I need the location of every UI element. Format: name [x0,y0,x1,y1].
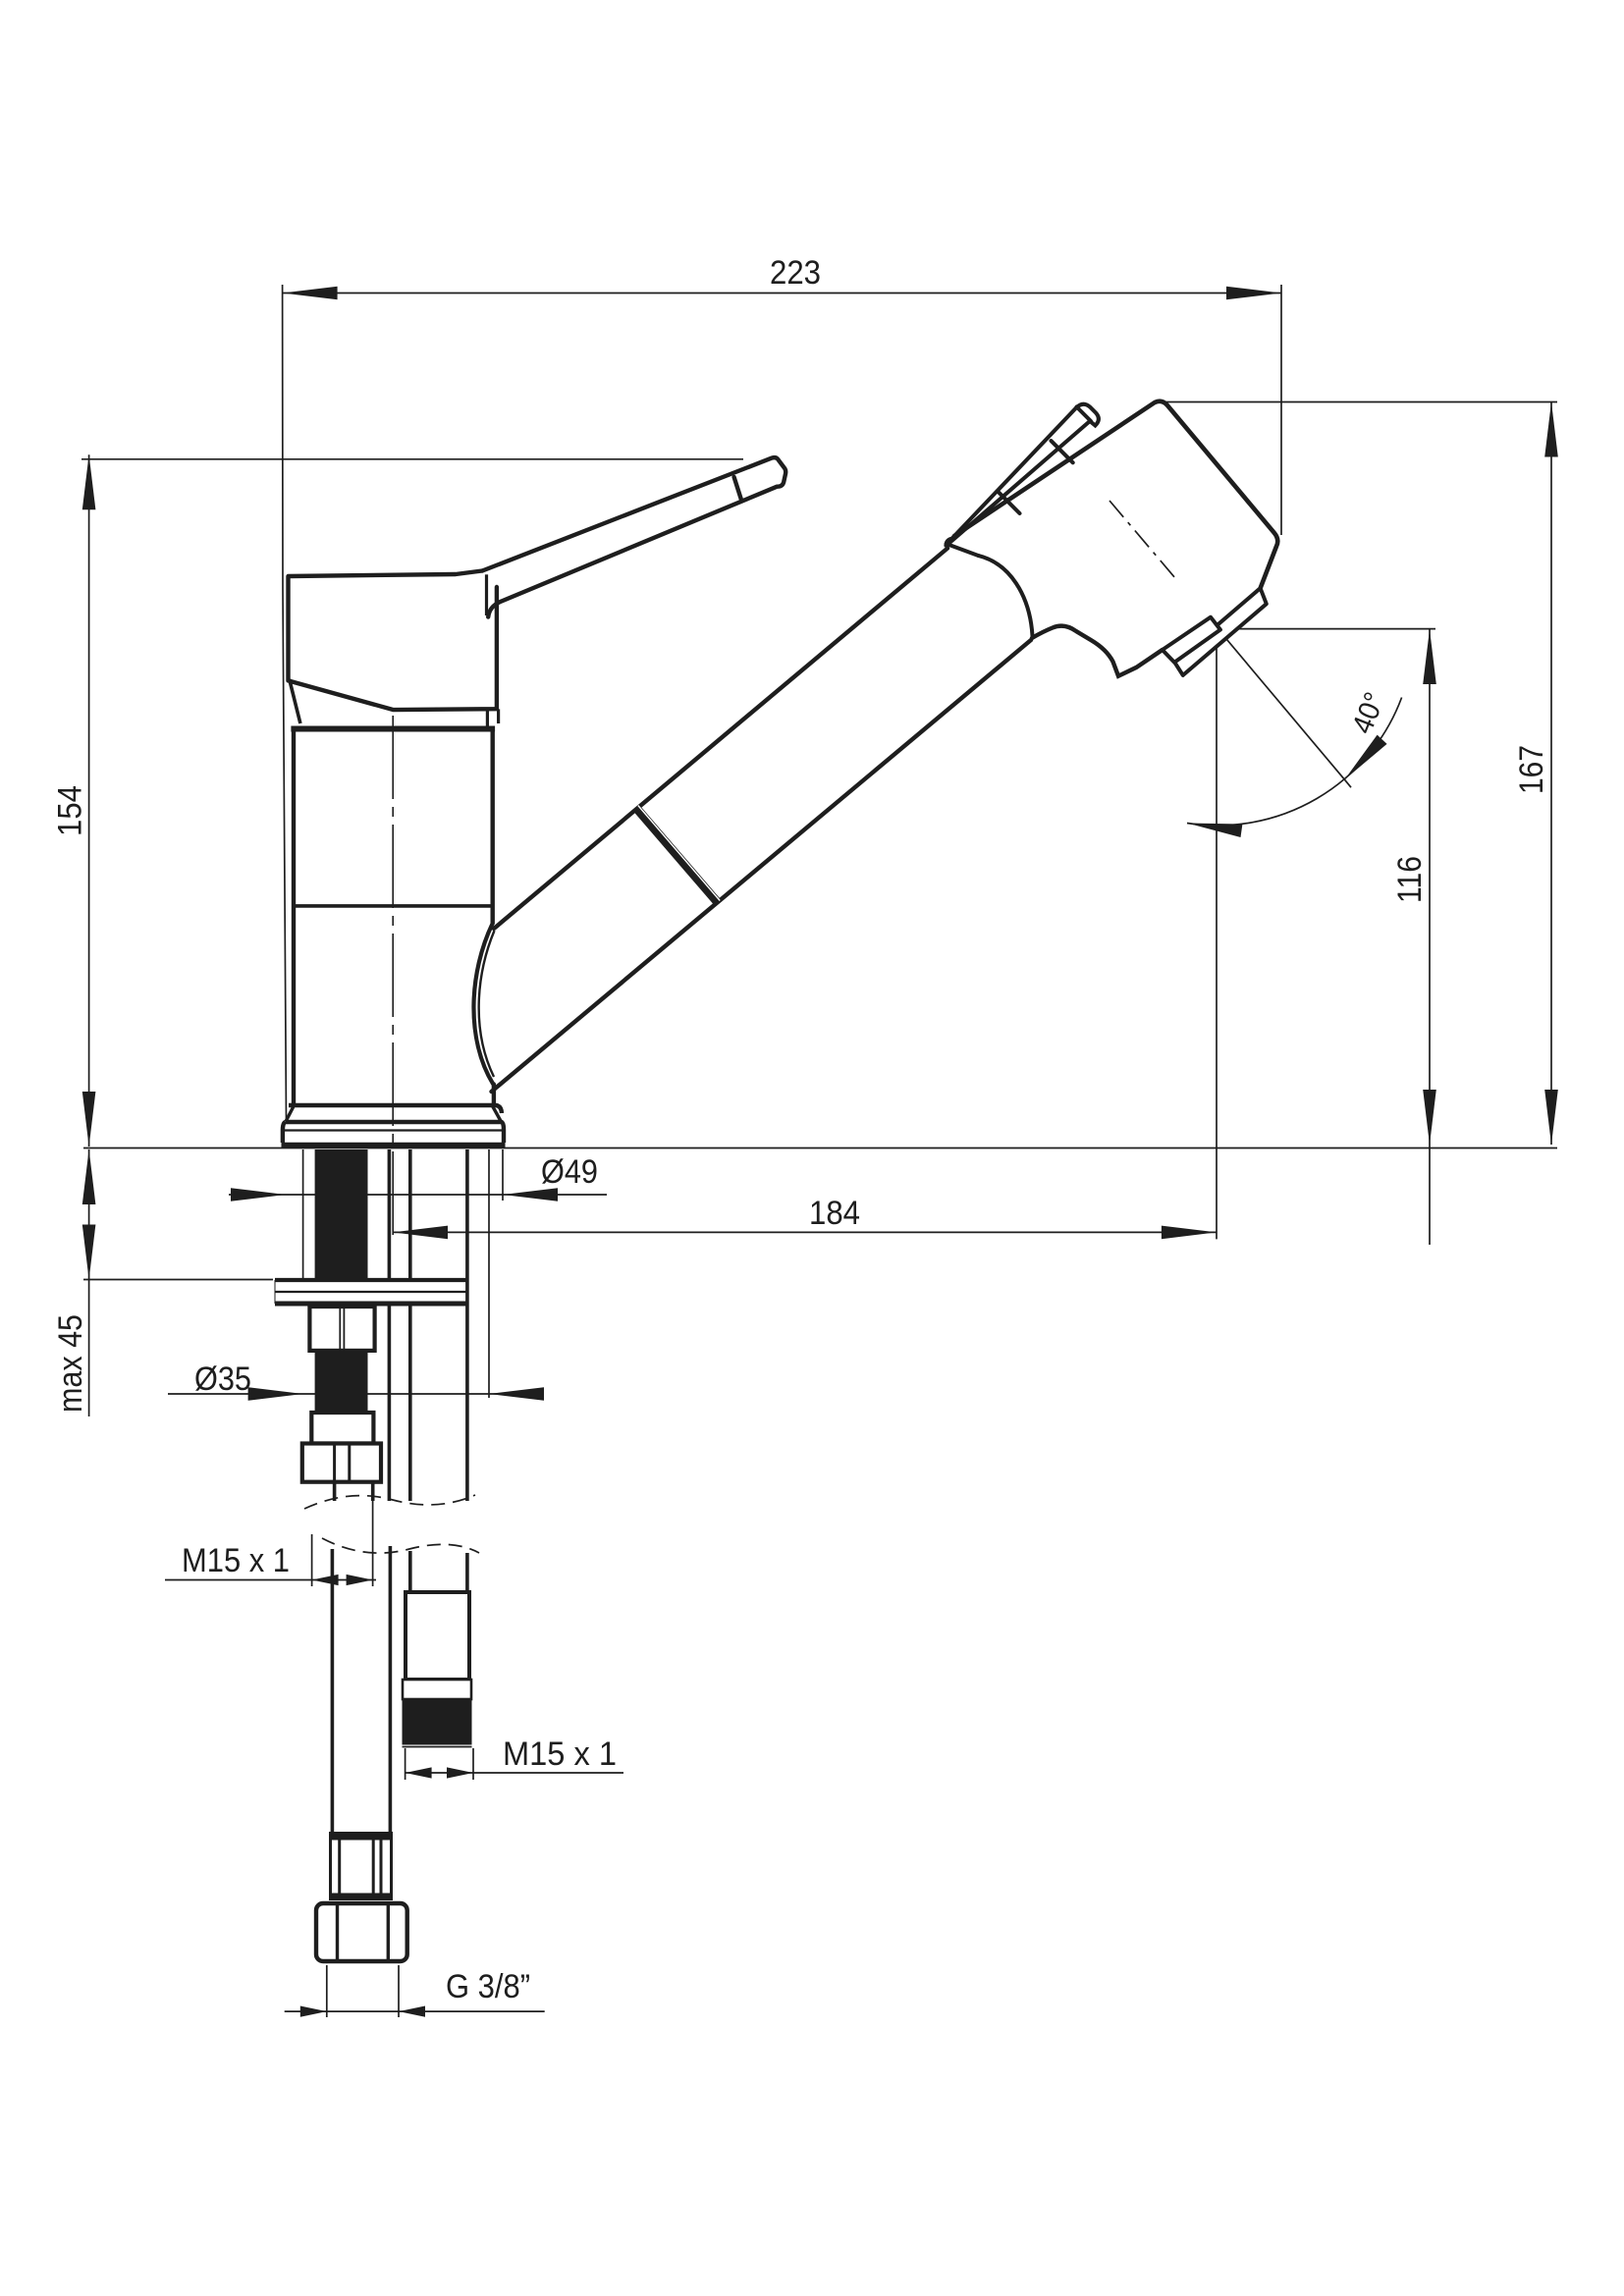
svg-text:G 3/8”: G 3/8” [446,1968,530,2005]
svg-text:M15 x 1: M15 x 1 [182,1542,290,1579]
svg-text:Ø35: Ø35 [194,1361,251,1398]
svg-text:max 45: max 45 [52,1314,89,1413]
svg-text:154: 154 [52,785,89,836]
svg-text:223: 223 [770,254,821,292]
svg-text:167: 167 [1513,745,1550,794]
svg-text:Ø49: Ø49 [541,1153,598,1191]
svg-text:116: 116 [1391,856,1429,903]
svg-text:M15 x 1: M15 x 1 [503,1735,617,1773]
svg-text:184: 184 [809,1195,860,1232]
